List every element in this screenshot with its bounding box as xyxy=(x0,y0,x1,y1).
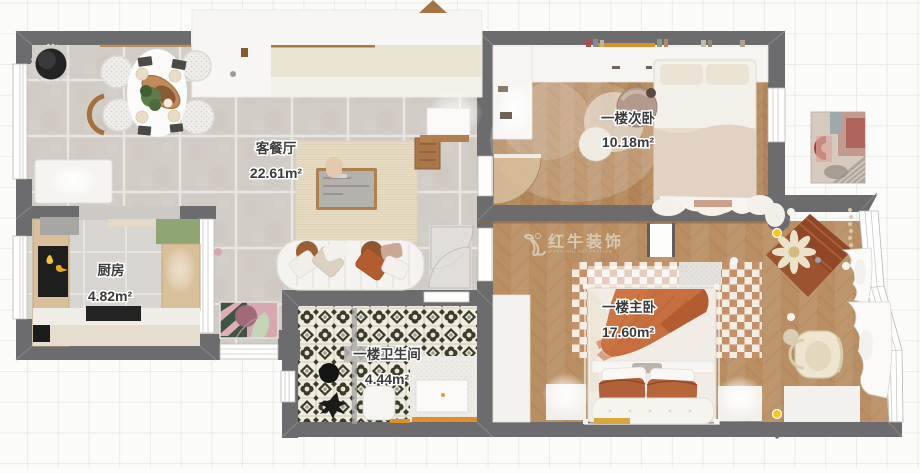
svg-text:厨房: 厨房 xyxy=(98,262,125,278)
svg-text:一楼卫生间: 一楼卫生间 xyxy=(353,346,421,362)
svg-text:客餐厅: 客餐厅 xyxy=(255,140,297,156)
svg-text:红牛装饰: 红牛装饰 xyxy=(548,232,624,251)
svg-text:一楼次卧: 一楼次卧 xyxy=(601,110,655,126)
svg-text:22.61m²: 22.61m² xyxy=(250,165,302,181)
svg-text:10.18m²: 10.18m² xyxy=(602,134,654,150)
svg-text:一楼主卧: 一楼主卧 xyxy=(602,299,656,315)
svg-text:HONG NIU DECORATION: HONG NIU DECORATION xyxy=(549,250,613,254)
svg-text:4.82m²: 4.82m² xyxy=(88,288,133,304)
svg-text:17.60m²: 17.60m² xyxy=(602,324,654,340)
svg-text:4.44m²: 4.44m² xyxy=(365,371,410,387)
